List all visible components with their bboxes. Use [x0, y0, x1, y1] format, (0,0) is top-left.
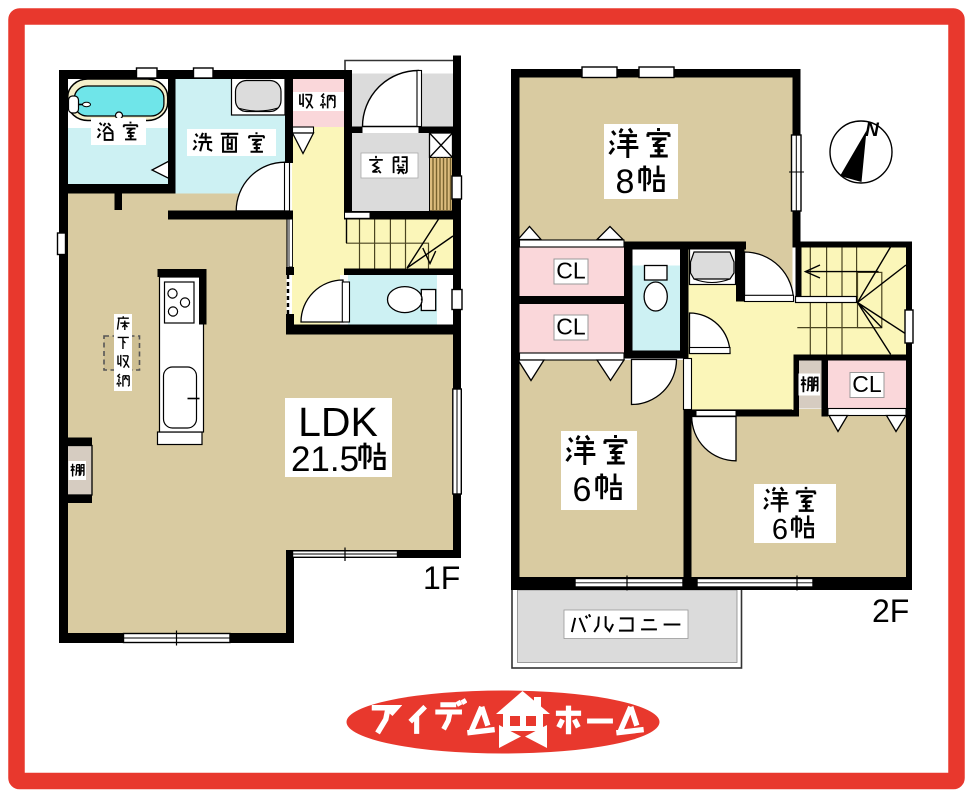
svg-text:21.5: 21.5 [291, 440, 359, 479]
svg-text:CL: CL [556, 314, 586, 340]
svg-text:LDK: LDK [298, 399, 378, 445]
svg-text:6: 6 [772, 514, 788, 546]
svg-text:6: 6 [573, 471, 592, 509]
svg-text:CL: CL [556, 258, 586, 284]
svg-text:8: 8 [616, 163, 635, 201]
svg-text:1F: 1F [423, 560, 460, 596]
svg-text:2F: 2F [872, 593, 909, 629]
svg-text:CL: CL [852, 371, 882, 397]
svg-text:N: N [865, 120, 880, 141]
